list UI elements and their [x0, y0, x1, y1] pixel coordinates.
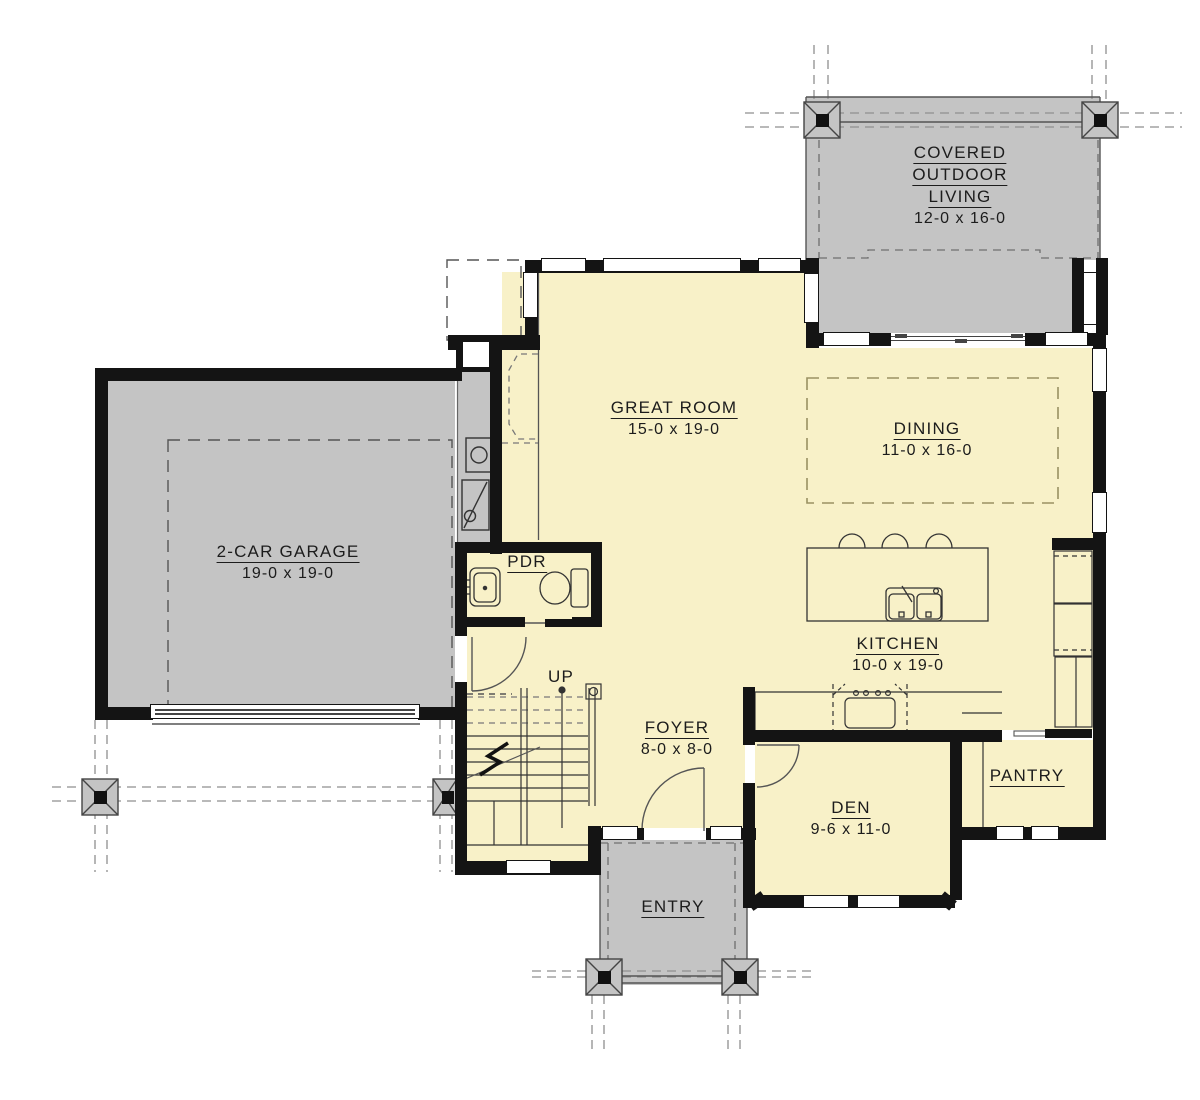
post-core [598, 971, 611, 984]
wall-segment [455, 552, 467, 636]
post-core [734, 971, 747, 984]
stool-icon [839, 534, 865, 548]
post-core [816, 114, 829, 127]
label-up: UP [548, 666, 574, 688]
window [758, 258, 801, 272]
label-pantry: PANTRY [990, 765, 1065, 787]
room-name: FOYER [645, 717, 710, 739]
wall-segment [95, 368, 462, 381]
stairs-up-label: UP [548, 666, 574, 687]
post-core [94, 791, 107, 804]
room-name: LIVING [929, 186, 992, 208]
wall-segment [1096, 258, 1108, 335]
room-dims: 9-6 x 11-0 [811, 819, 892, 840]
room-name: 2-CAR GARAGE [217, 541, 360, 563]
window [541, 258, 586, 272]
label-entry: ENTRY [641, 896, 704, 918]
garage-door [150, 704, 420, 719]
label-dining: DINING 11-0 x 16-0 [882, 418, 973, 461]
pocket-door [545, 619, 585, 627]
window [857, 895, 900, 908]
room-name: PDR [507, 551, 547, 573]
room-name: ENTRY [641, 896, 704, 918]
wall-segment [743, 730, 1002, 742]
newel-post [586, 684, 601, 699]
staircase [458, 684, 601, 845]
window [996, 826, 1024, 840]
wall-segment [950, 738, 962, 900]
post-core [442, 791, 454, 804]
window-sidelite [710, 826, 742, 840]
window [523, 272, 538, 318]
wall-segment [950, 827, 1106, 840]
post-core [1094, 114, 1107, 127]
furnace-icon [462, 480, 489, 530]
room-name: COVERED [914, 142, 1006, 164]
window [1092, 348, 1107, 392]
wall-segment [743, 783, 755, 908]
window [603, 258, 741, 272]
wall-segment [455, 682, 467, 875]
window [803, 895, 849, 908]
door-swings [467, 623, 1068, 831]
window [1092, 492, 1107, 533]
range-icon [833, 684, 907, 730]
window [506, 860, 551, 874]
label-covered-outdoor-living: COVERED OUTDOOR LIVING 12-0 x 16-0 [912, 142, 1007, 229]
label-great-room: GREAT ROOM 15-0 x 19-0 [611, 397, 738, 440]
room-name: GREAT ROOM [611, 397, 738, 419]
label-den: DEN 9-6 x 11-0 [811, 797, 892, 840]
room-name: PANTRY [990, 765, 1065, 787]
room-dims: 8-0 x 8-0 [641, 739, 713, 760]
refrigerator-icon [1054, 551, 1092, 727]
window [1083, 272, 1097, 325]
wall-segment [95, 707, 153, 720]
window [804, 273, 819, 323]
label-powder: PDR [507, 551, 547, 573]
wall-segment [1052, 538, 1095, 550]
window [1031, 826, 1059, 840]
window [823, 332, 870, 346]
stair-break-mark [480, 743, 508, 775]
wall-segment [748, 895, 955, 908]
room-dims: 11-0 x 16-0 [882, 440, 973, 461]
room-dims: 12-0 x 16-0 [912, 208, 1007, 229]
garage-clearance-dash [168, 260, 521, 712]
stool-icon [926, 534, 952, 548]
barn-door [1045, 729, 1092, 738]
water-heater-icon [466, 438, 492, 472]
wall-segment [490, 338, 502, 554]
window [1045, 332, 1088, 346]
toilet-icon [540, 569, 588, 607]
sink-icon [465, 568, 500, 606]
room-name: DEN [831, 797, 871, 819]
label-foyer: FOYER 8-0 x 8-0 [641, 717, 713, 760]
sliding-door [891, 333, 1025, 346]
wall-segment [591, 542, 602, 627]
room-name: KITCHEN [856, 633, 939, 655]
label-garage: 2-CAR GARAGE 19-0 x 19-0 [217, 541, 360, 584]
room-dims: 10-0 x 19-0 [852, 655, 944, 676]
room-name: DINING [894, 418, 961, 440]
room-dims: 19-0 x 19-0 [217, 563, 360, 584]
kitchen-island [807, 534, 988, 621]
window [462, 341, 490, 368]
stool-icon [882, 534, 908, 548]
wall-segment [95, 368, 108, 720]
label-kitchen: KITCHEN 10-0 x 19-0 [852, 633, 944, 676]
floor-plan: COVERED OUTDOOR LIVING 12-0 x 16-0 GREAT… [0, 0, 1200, 1100]
room-name: OUTDOOR [912, 164, 1007, 186]
room-dims: 15-0 x 19-0 [611, 419, 738, 440]
wall-segment [1093, 335, 1106, 840]
window-sidelite [602, 826, 638, 840]
